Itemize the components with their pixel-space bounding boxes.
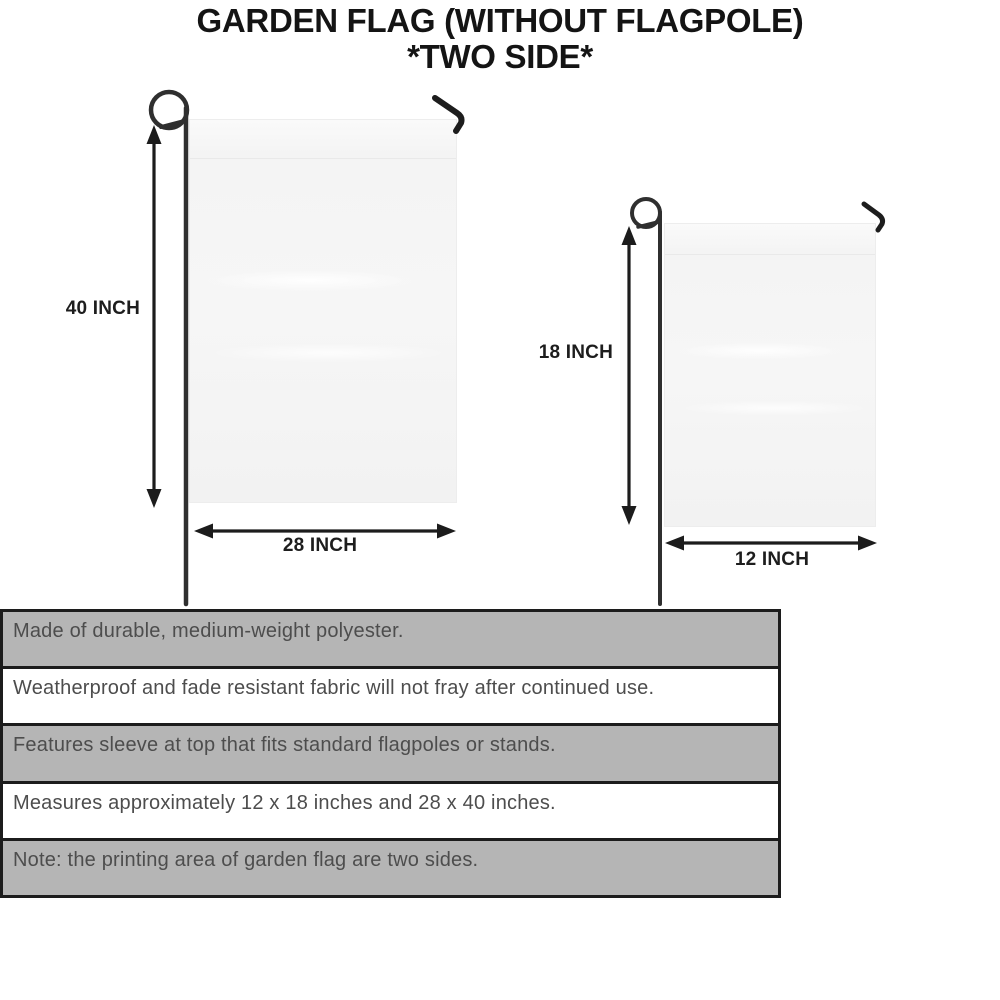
large-width-label: 28 INCH (250, 535, 390, 557)
small-height-arrow (622, 226, 637, 525)
small-width-label: 12 INCH (702, 549, 842, 571)
large-height-arrow (147, 125, 162, 508)
page-subtitle: *TWO SIDE* (0, 39, 1000, 74)
small-flagpole (632, 199, 660, 604)
flag-sleeve-seam (190, 158, 456, 159)
garden-flag-infographic: GARDEN FLAG (WITHOUT FLAGPOLE) *TWO SIDE… (0, 0, 1000, 1000)
feature-text: Made of durable, medium-weight polyester… (13, 620, 404, 642)
small-height-label: 18 INCH (511, 342, 613, 364)
feature-row: Made of durable, medium-weight polyester… (3, 612, 778, 669)
feature-text: Measures approximately 12 x 18 inches an… (13, 792, 556, 814)
feature-row: Note: the printing area of garden flag a… (3, 841, 778, 895)
feature-text: Features sleeve at top that fits standar… (13, 734, 556, 756)
page-title: GARDEN FLAG (WITHOUT FLAGPOLE) (0, 2, 1000, 39)
small-pole-loop-icon (632, 199, 660, 227)
title-block: GARDEN FLAG (WITHOUT FLAGPOLE) *TWO SIDE… (0, 2, 1000, 74)
large-pole-loop-icon (151, 92, 187, 128)
flag-small-preview (664, 223, 876, 527)
feature-text: Weatherproof and fade resistant fabric w… (13, 677, 654, 699)
feature-row: Measures approximately 12 x 18 inches an… (3, 784, 778, 841)
flag-large-preview (189, 119, 457, 503)
large-flagpole (151, 92, 187, 604)
feature-table: Made of durable, medium-weight polyester… (0, 609, 781, 898)
feature-row: Features sleeve at top that fits standar… (3, 726, 778, 783)
feature-text: Note: the printing area of garden flag a… (13, 849, 478, 871)
feature-row: Weatherproof and fade resistant fabric w… (3, 669, 778, 726)
flag-sleeve-seam (665, 254, 875, 255)
large-height-label: 40 INCH (38, 298, 140, 320)
